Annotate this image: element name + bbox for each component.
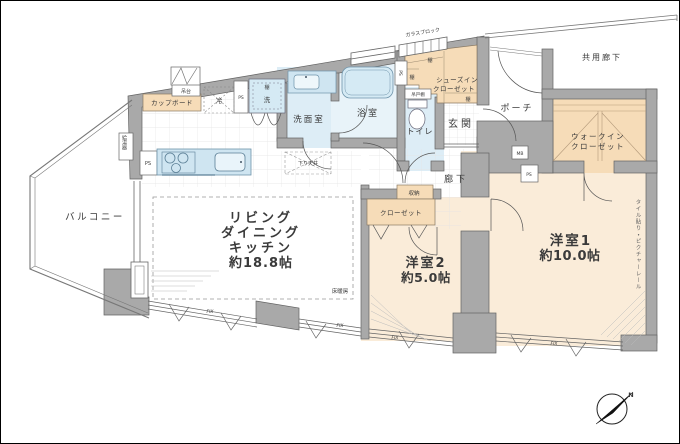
- wall-toilet-bottom-r: [431, 161, 444, 171]
- window-band-ldk: [148, 301, 257, 330]
- label-lowered-ceiling: 下り天井: [298, 160, 318, 167]
- label-common-corridor: 共用廊下: [582, 52, 622, 62]
- label-washer: 洗: [264, 95, 271, 104]
- balcony-sliding-door: [131, 181, 148, 298]
- label-toilet: トイレ: [407, 127, 434, 136]
- label-ldk-size: 約18.8帖: [228, 255, 293, 271]
- label-ldk-line2: ダイニング: [221, 225, 301, 241]
- wall-bottom-block-mid: [453, 313, 496, 353]
- label-porch: ポーチ: [500, 103, 533, 114]
- north-compass-icon: N: [596, 391, 634, 424]
- label-ldk-line1: リビング: [229, 210, 293, 226]
- label-closet: クローゼット: [380, 208, 422, 217]
- label-bathroom: 浴室: [357, 107, 379, 119]
- label-bedroom1-size: 約10.0帖: [538, 248, 600, 264]
- common-corridor-lines: [485, 15, 677, 56]
- label-glass-block: ガラスブロック: [405, 26, 441, 39]
- faucet-dot-icon: [240, 161, 242, 163]
- room-wic-area: [542, 89, 657, 173]
- label-fix-4: FIX: [551, 341, 559, 347]
- label-wall-finish: タイル貼り・ピクチャーレール: [634, 199, 640, 290]
- label-shelf-3: 棚: [465, 96, 470, 103]
- wall-wic-bottom-left: [553, 161, 584, 173]
- label-floor-heating: 床暖房: [332, 287, 349, 295]
- label-entrance: 玄関: [448, 117, 474, 130]
- label-water-heater: 給湯器: [121, 135, 126, 150]
- label-bedroom2-size: 約5.0帖: [400, 270, 451, 285]
- label-shelf-1: 棚: [427, 57, 432, 64]
- kitchen-fixtures: [157, 149, 251, 175]
- wall-east: [646, 89, 657, 343]
- ldk-west-hatch: [151, 271, 219, 291]
- label-ps-mid: PS: [238, 95, 244, 101]
- wall-washroom-bottom-l: [277, 138, 303, 148]
- label-balcony: バルコニー: [65, 212, 125, 223]
- wall-sic-porch: [477, 37, 489, 105]
- label-hanging-unit: 吊台: [181, 88, 191, 95]
- wall-entrance-west: [435, 97, 444, 149]
- label-wic-line1: ウォークイン: [571, 132, 625, 141]
- label-refrigerator: 冷: [216, 96, 223, 105]
- label-storage: 収納: [408, 189, 420, 197]
- floorplan-drawing: N リビング ダイニング キッチン 約18.8帖 洋室1 約10.0帖 洋室2 …: [1, 1, 680, 444]
- label-ldk-line3: キッチン: [229, 241, 293, 256]
- label-fix-1: FIX: [207, 309, 215, 315]
- toilet-tank: [408, 100, 427, 108]
- label-hallway: 廊下: [444, 173, 468, 185]
- wall-corner-se: [621, 335, 657, 351]
- label-sic-line1: シューズイン: [436, 75, 478, 84]
- label-sic-line2: クローゼット: [433, 84, 475, 93]
- label-shelf-2: 棚: [409, 74, 414, 81]
- label-fix-3: FIX: [392, 335, 400, 341]
- bathtub: [342, 67, 393, 98]
- label-shelf-washer: 棚: [264, 84, 269, 91]
- wall-closet-top-r: [433, 189, 441, 199]
- label-bedroom1: 洋室1: [550, 232, 592, 249]
- label-fix-2: FIX: [337, 323, 345, 329]
- label-washroom: 洗面室: [293, 114, 325, 125]
- wall-wic-bottom-right: [614, 161, 657, 173]
- wall-toilet-bottom-l: [397, 161, 409, 171]
- label-wic-line2: クローゼット: [571, 141, 625, 151]
- floorplan-page: N リビング ダイニング キッチン 約18.8帖 洋室1 約10.0帖 洋室2 …: [0, 0, 680, 444]
- wall-wic-top: [542, 89, 657, 99]
- wall-bottom-block-ldk: [256, 301, 299, 330]
- wall-closet-top-l: [361, 189, 399, 199]
- label-bedroom2: 洋室2: [405, 255, 446, 271]
- label-cupboard: カップボード: [151, 99, 193, 107]
- label-ps-bath: PS: [397, 70, 403, 76]
- label-ps-kitchen: PS: [145, 161, 151, 167]
- label-mb: MB: [517, 151, 524, 157]
- faucet-dot-icon: [305, 76, 307, 78]
- wall-bath-divider-bottom: [331, 133, 339, 141]
- toilet-bowl-icon: [409, 109, 425, 129]
- label-ps-bedroom1: PS: [526, 172, 532, 178]
- north-label: N: [628, 391, 633, 399]
- label-hanging-cabinet: 吊戸棚: [411, 91, 425, 98]
